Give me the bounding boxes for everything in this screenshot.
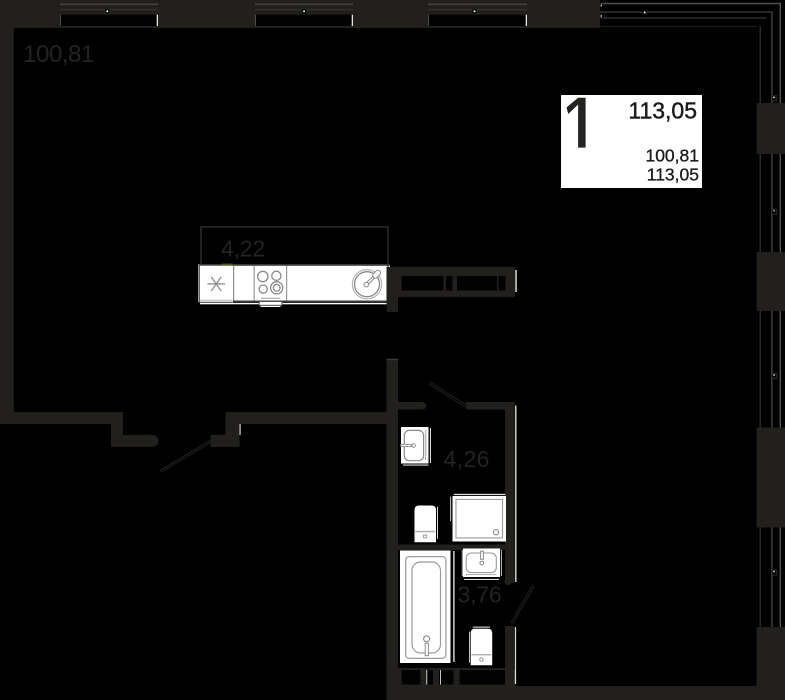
- svg-text:3,76: 3,76: [458, 582, 502, 608]
- svg-text:100,81: 100,81: [23, 41, 94, 68]
- svg-text:100,81: 100,81: [645, 146, 699, 166]
- svg-text:113,05: 113,05: [647, 164, 699, 184]
- svg-text:4,22: 4,22: [221, 236, 265, 262]
- svg-text:4,26: 4,26: [444, 446, 490, 472]
- svg-text:113,05: 113,05: [628, 97, 697, 123]
